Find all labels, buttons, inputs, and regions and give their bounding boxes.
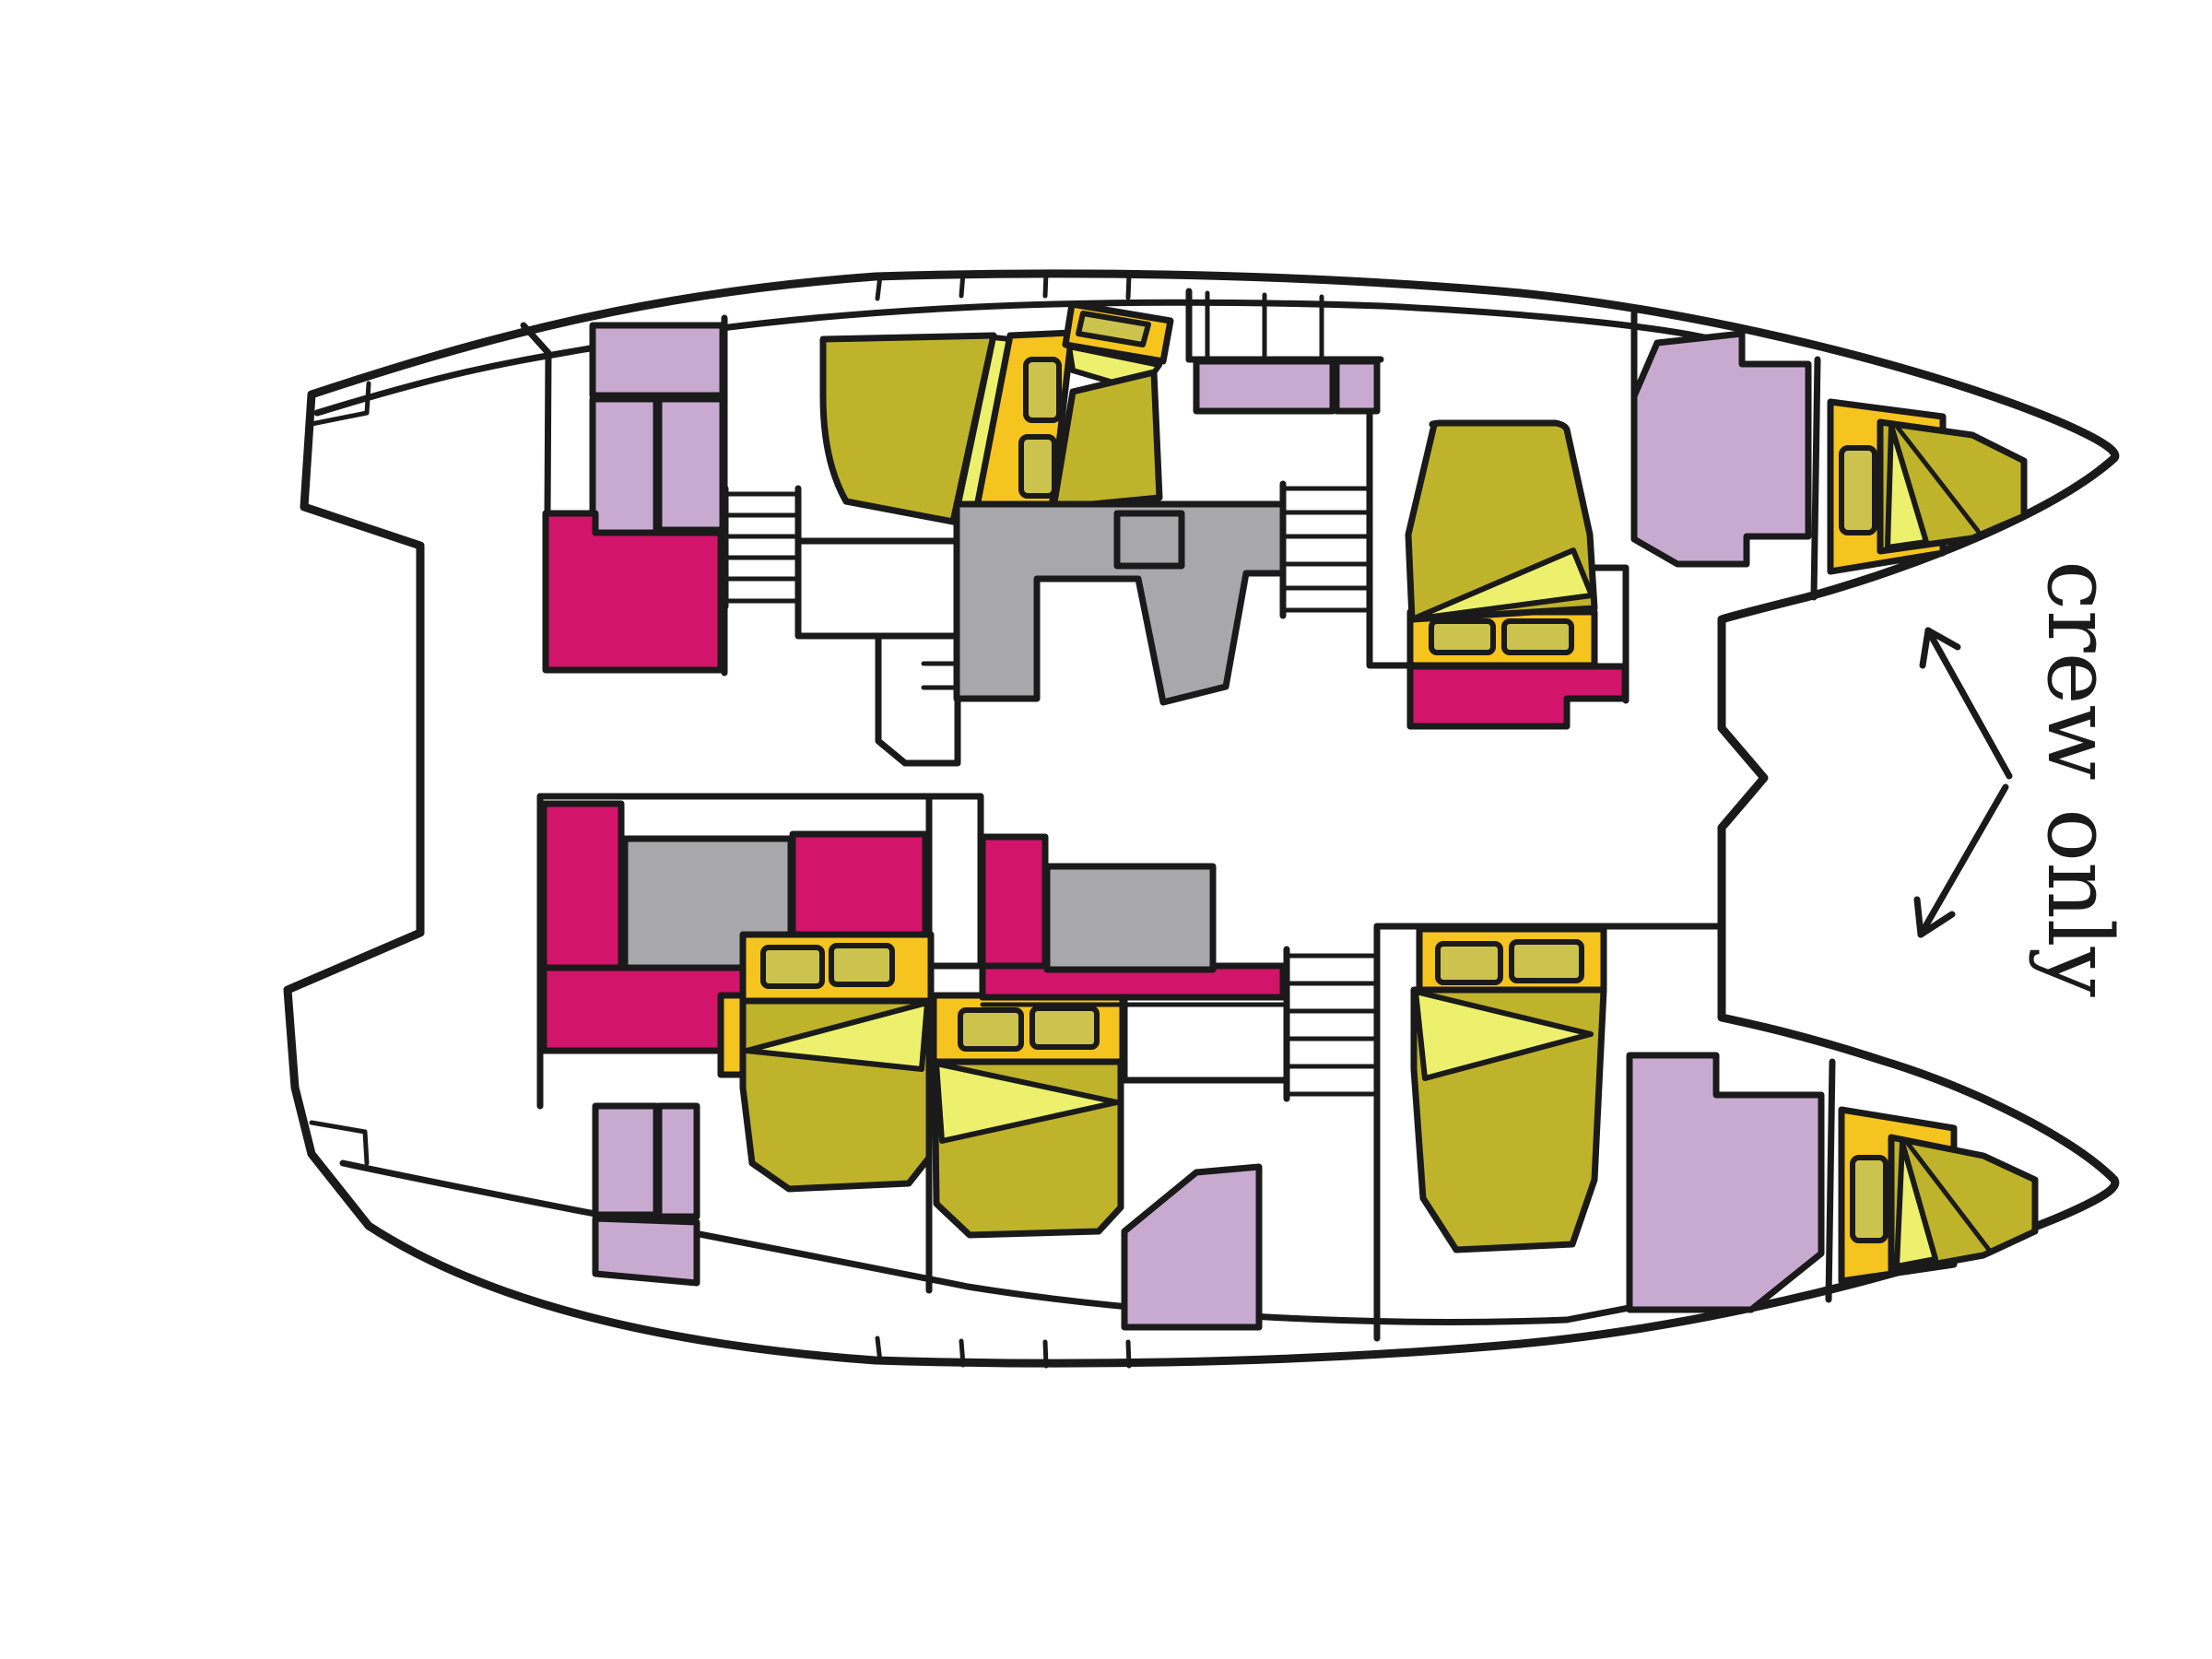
crew-bulkhead xyxy=(1814,359,1818,597)
hatch-tick xyxy=(961,273,963,296)
hatch-tick xyxy=(1128,275,1129,298)
hatch-tick xyxy=(1045,1342,1046,1366)
double-bed-mid-top xyxy=(1408,423,1594,665)
double-bed-forward xyxy=(1414,929,1604,1250)
bathroom-area xyxy=(546,513,721,670)
wardrobe-forward xyxy=(1634,334,1808,564)
bed-side-shelf xyxy=(721,995,743,1075)
wardrobe xyxy=(595,1106,656,1215)
wardrobe-forward xyxy=(1630,1055,1821,1310)
wardrobe xyxy=(659,399,723,530)
double-bed-right xyxy=(934,995,1123,1235)
hatch-tick xyxy=(1045,273,1046,296)
bed-window xyxy=(1026,359,1059,420)
wardrobe xyxy=(593,399,656,533)
bed-pillow xyxy=(1512,942,1582,981)
wardrobe xyxy=(659,1106,697,1217)
bed-pillow xyxy=(1032,1008,1097,1047)
bed-pillow xyxy=(763,947,822,986)
crew-bed-window xyxy=(1853,1158,1886,1241)
crew-only-label: crew only xyxy=(2028,560,2131,997)
crew-bulkhead xyxy=(1829,1062,1832,1300)
crew-only-annotation: crew only xyxy=(1917,560,2131,997)
wardrobe xyxy=(1196,361,1333,411)
wardrobe xyxy=(595,1218,697,1283)
crew-bed-window xyxy=(1841,448,1875,533)
galley-sink-island xyxy=(1117,513,1182,566)
bed-pillow xyxy=(831,946,892,984)
bed-pillow xyxy=(1431,621,1493,653)
double-bed-aft-top xyxy=(823,304,1171,522)
wardrobe xyxy=(593,325,723,395)
hatch-tick xyxy=(1128,1342,1129,1366)
crew-arrow-up xyxy=(1928,630,2009,776)
bed-pillow xyxy=(1504,621,1571,653)
bed-pillow xyxy=(1438,944,1500,982)
hatch-tick xyxy=(877,276,880,299)
crew-arrow-down xyxy=(1921,787,2006,935)
wardrobe xyxy=(1336,361,1377,411)
bed-window xyxy=(1021,437,1054,496)
hatch-tick xyxy=(961,1341,963,1365)
double-bed-left xyxy=(721,935,931,1189)
floor-plan-canvas: crew only xyxy=(0,0,2212,1659)
bed-pillow xyxy=(960,1010,1021,1049)
side-table xyxy=(1047,866,1213,970)
catamaran-floor-plan: crew only xyxy=(0,0,2212,1659)
hatch-tick xyxy=(877,1338,880,1362)
